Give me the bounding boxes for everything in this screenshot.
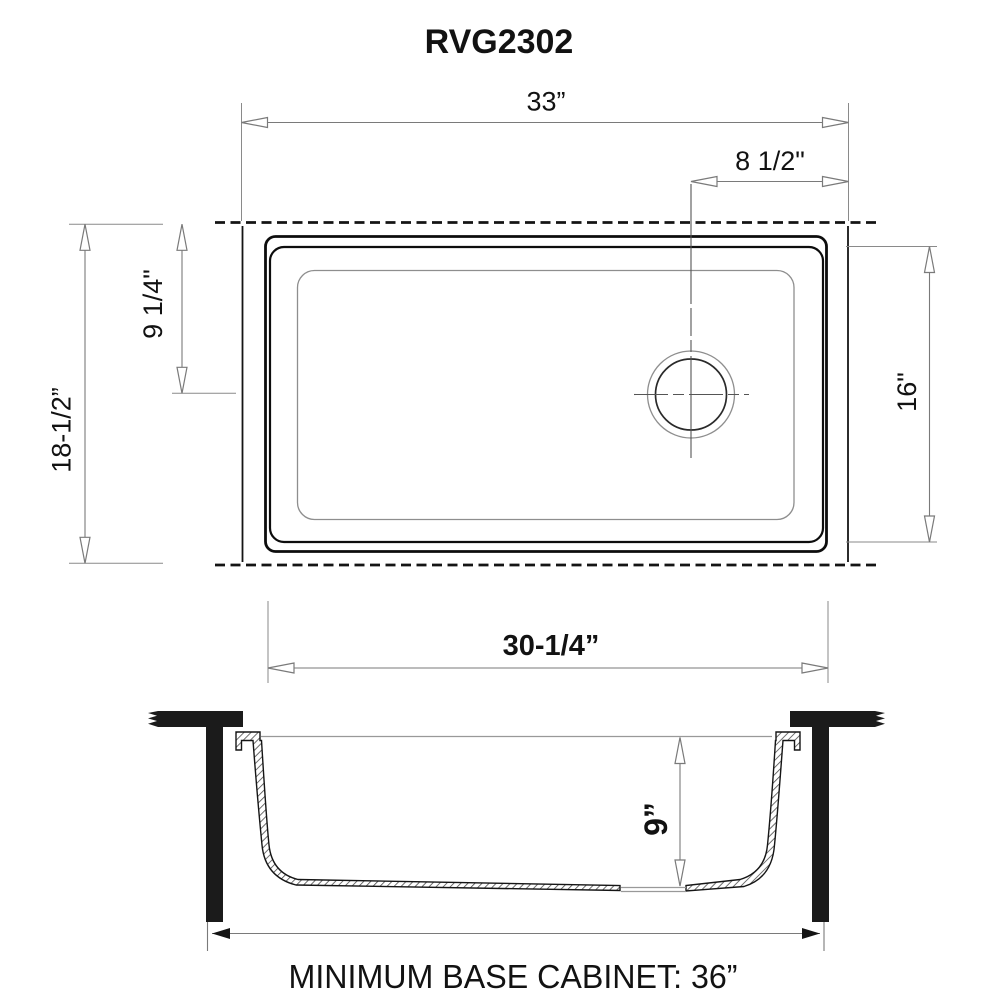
dim-label-drain-offset: 8 1/2" bbox=[735, 146, 805, 176]
sink-rim-inner bbox=[270, 247, 823, 542]
sink-section-right bbox=[686, 732, 800, 891]
sink-rim-outer bbox=[266, 237, 827, 552]
min-base-cabinet-caption: MINIMUM BASE CABINET: 36” bbox=[289, 958, 738, 995]
dim-label-bowl-depth: 9” bbox=[638, 802, 674, 836]
dimensions-top-view: 33” 8 1/2" 18-1/2” 9 1/4" 16" 30-1/4” bbox=[47, 87, 938, 684]
dim-label-overall-width: 33” bbox=[526, 87, 565, 117]
countertop-left bbox=[148, 711, 243, 727]
dim-label-drain-from-top: 9 1/4" bbox=[138, 269, 168, 339]
dim-label-inner-depth: 16" bbox=[892, 372, 922, 412]
cabinet-wall-right bbox=[812, 727, 829, 922]
dimensions-section: 9” MINIMUM BASE CABINET: 36” bbox=[208, 738, 825, 996]
dim-label-rim-width: 30-1/4” bbox=[503, 630, 600, 662]
countertop-right bbox=[790, 711, 885, 727]
sink-spec-drawing: RVG2302 33” 8 1/2" 18-1/2” 9 bbox=[0, 0, 1000, 1000]
dim-label-overall-depth: 18-1/2” bbox=[47, 387, 77, 473]
sink-section-left bbox=[236, 732, 620, 891]
model-title: RVG2302 bbox=[425, 23, 574, 61]
section-view bbox=[148, 711, 885, 922]
cabinet-wall-left bbox=[206, 727, 223, 922]
top-view bbox=[215, 184, 877, 565]
